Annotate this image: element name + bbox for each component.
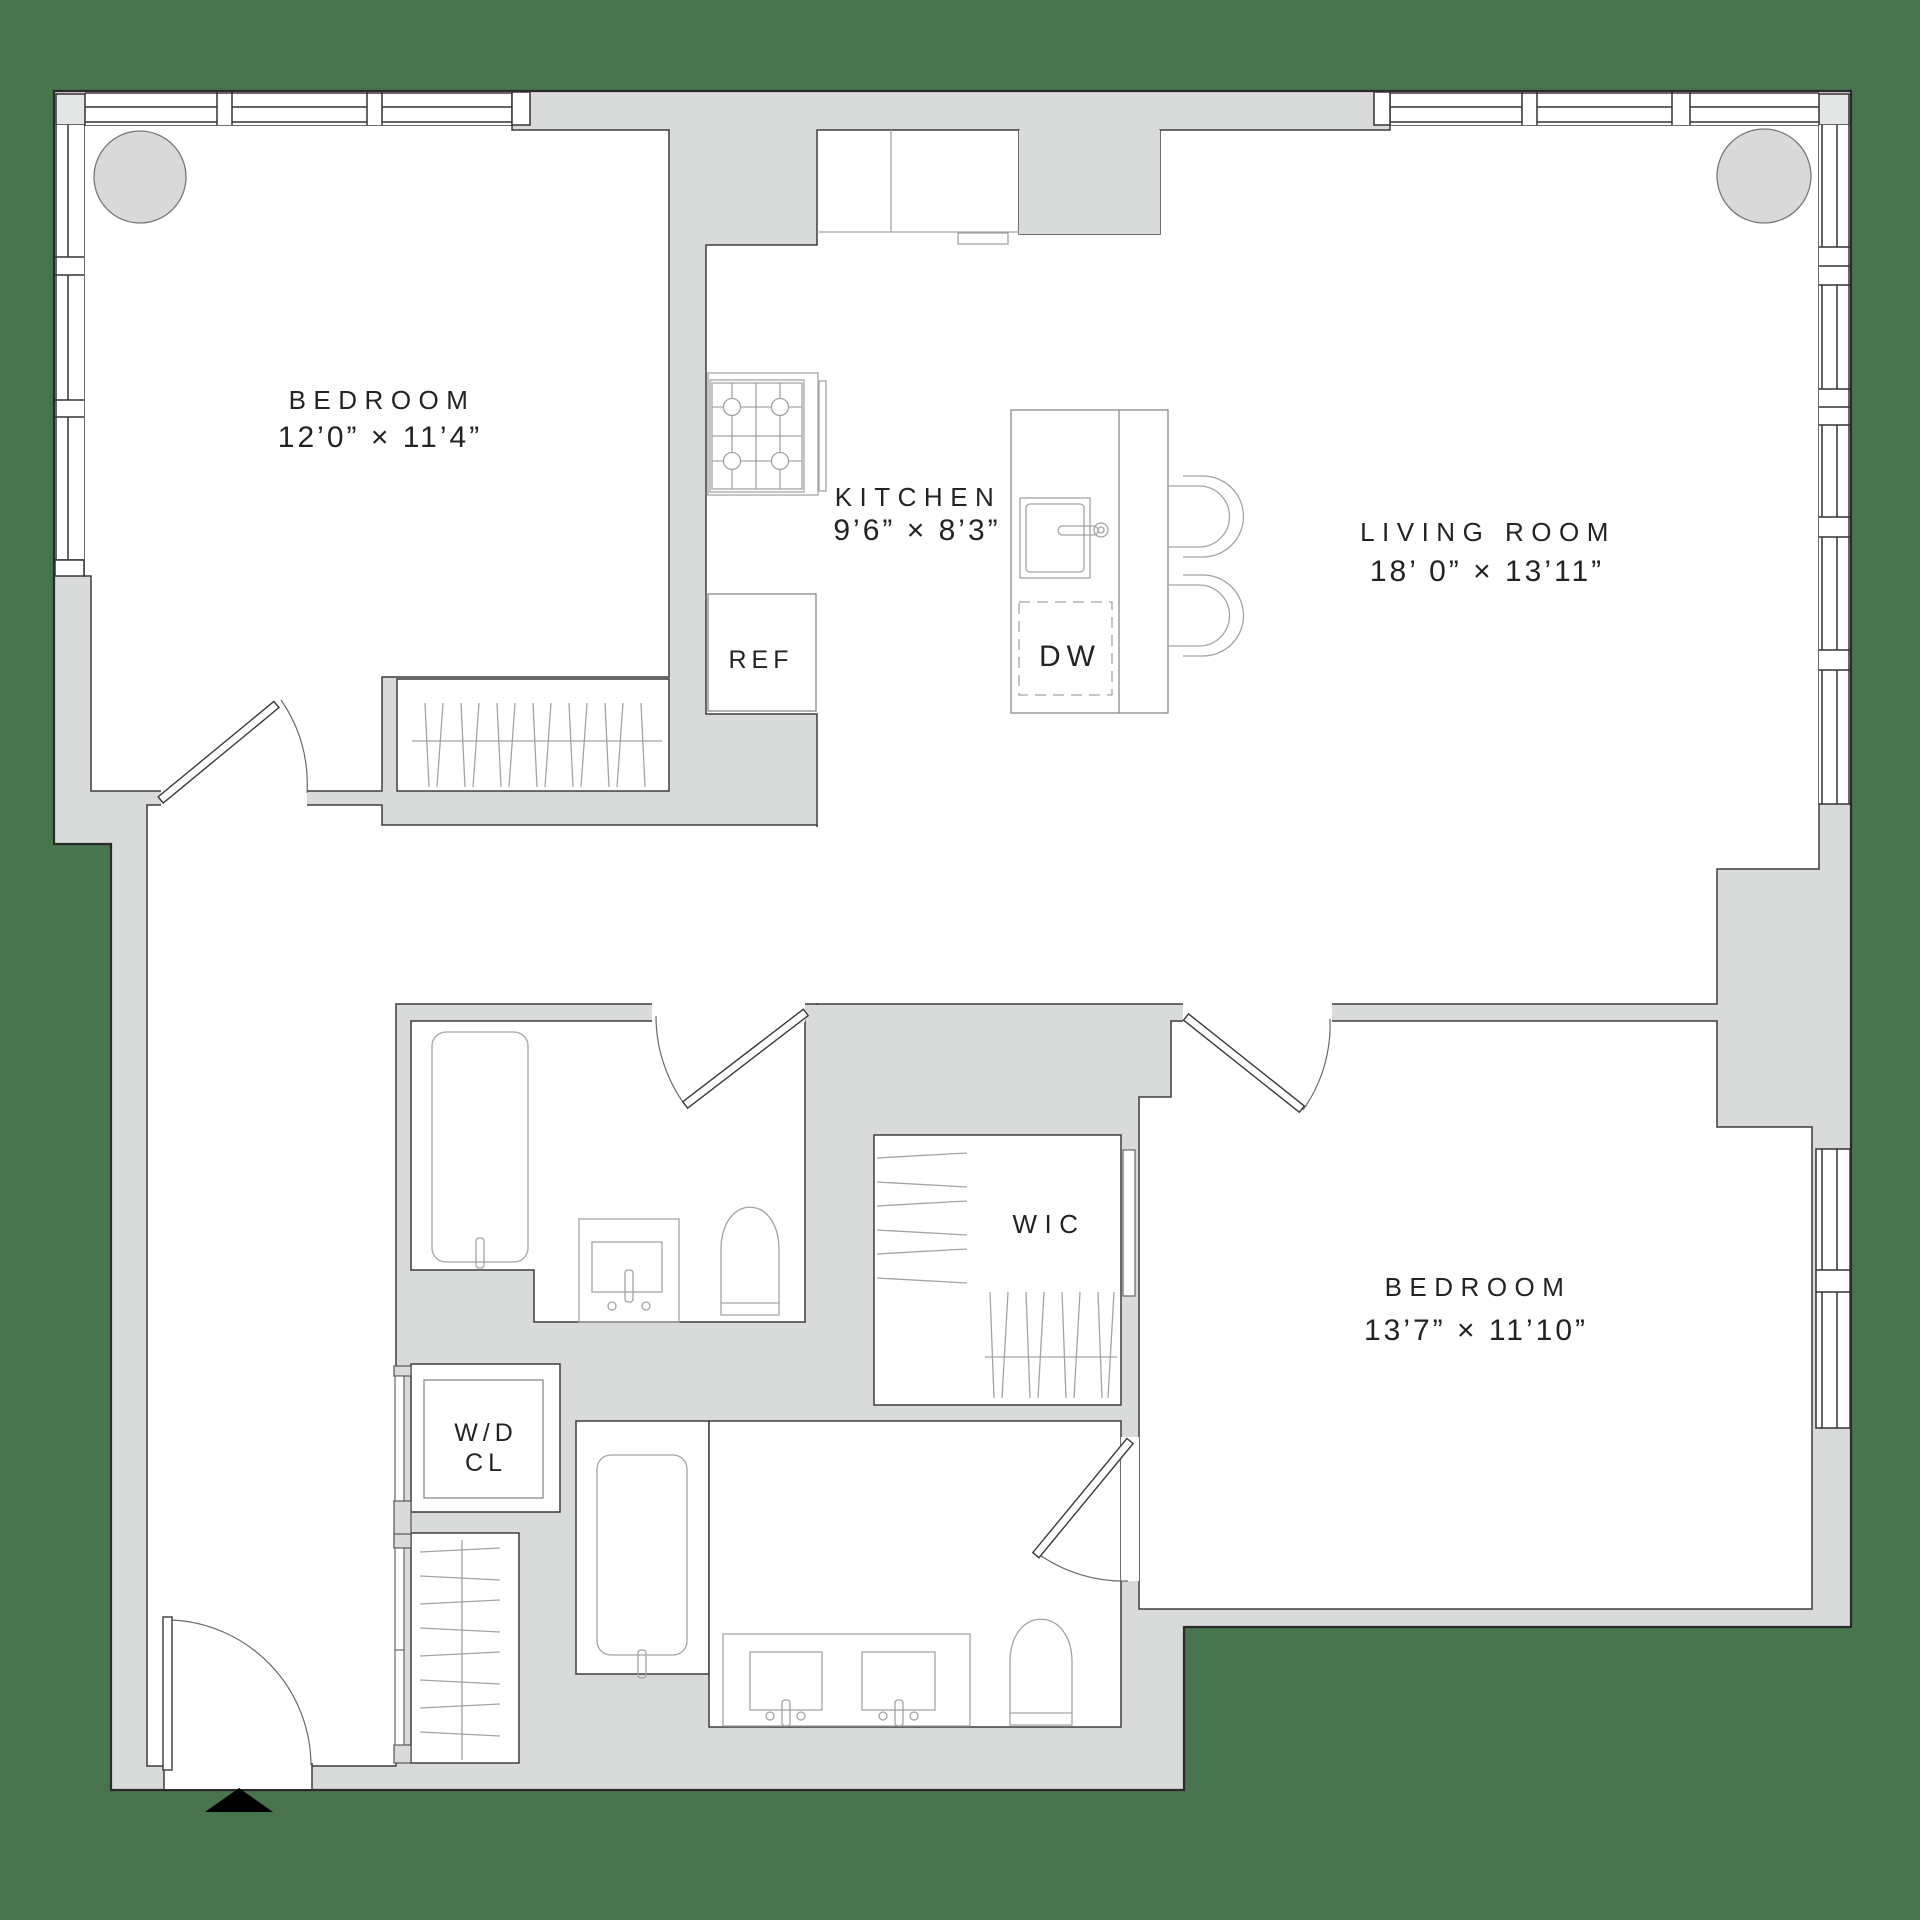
svg-text:WIC: WIC [1012,1209,1085,1239]
svg-text:REF: REF [729,646,794,674]
svg-text:9’6” × 8’3”: 9’6” × 8’3” [833,514,1000,547]
svg-text:CL: CL [465,1449,507,1477]
svg-text:KITCHEN: KITCHEN [835,482,1002,512]
svg-text:12’0” × 11’4”: 12’0” × 11’4” [278,421,482,454]
svg-text:W/D: W/D [454,1419,518,1447]
svg-text:BEDROOM: BEDROOM [1385,1272,1572,1302]
svg-text:BEDROOM: BEDROOM [289,385,476,415]
svg-text:13’7” × 11’10”: 13’7” × 11’10” [1364,1314,1588,1347]
svg-text:18’ 0” × 13’11”: 18’ 0” × 13’11” [1370,555,1604,588]
svg-text:DW: DW [1039,640,1101,673]
svg-text:LIVING ROOM: LIVING ROOM [1360,517,1616,547]
